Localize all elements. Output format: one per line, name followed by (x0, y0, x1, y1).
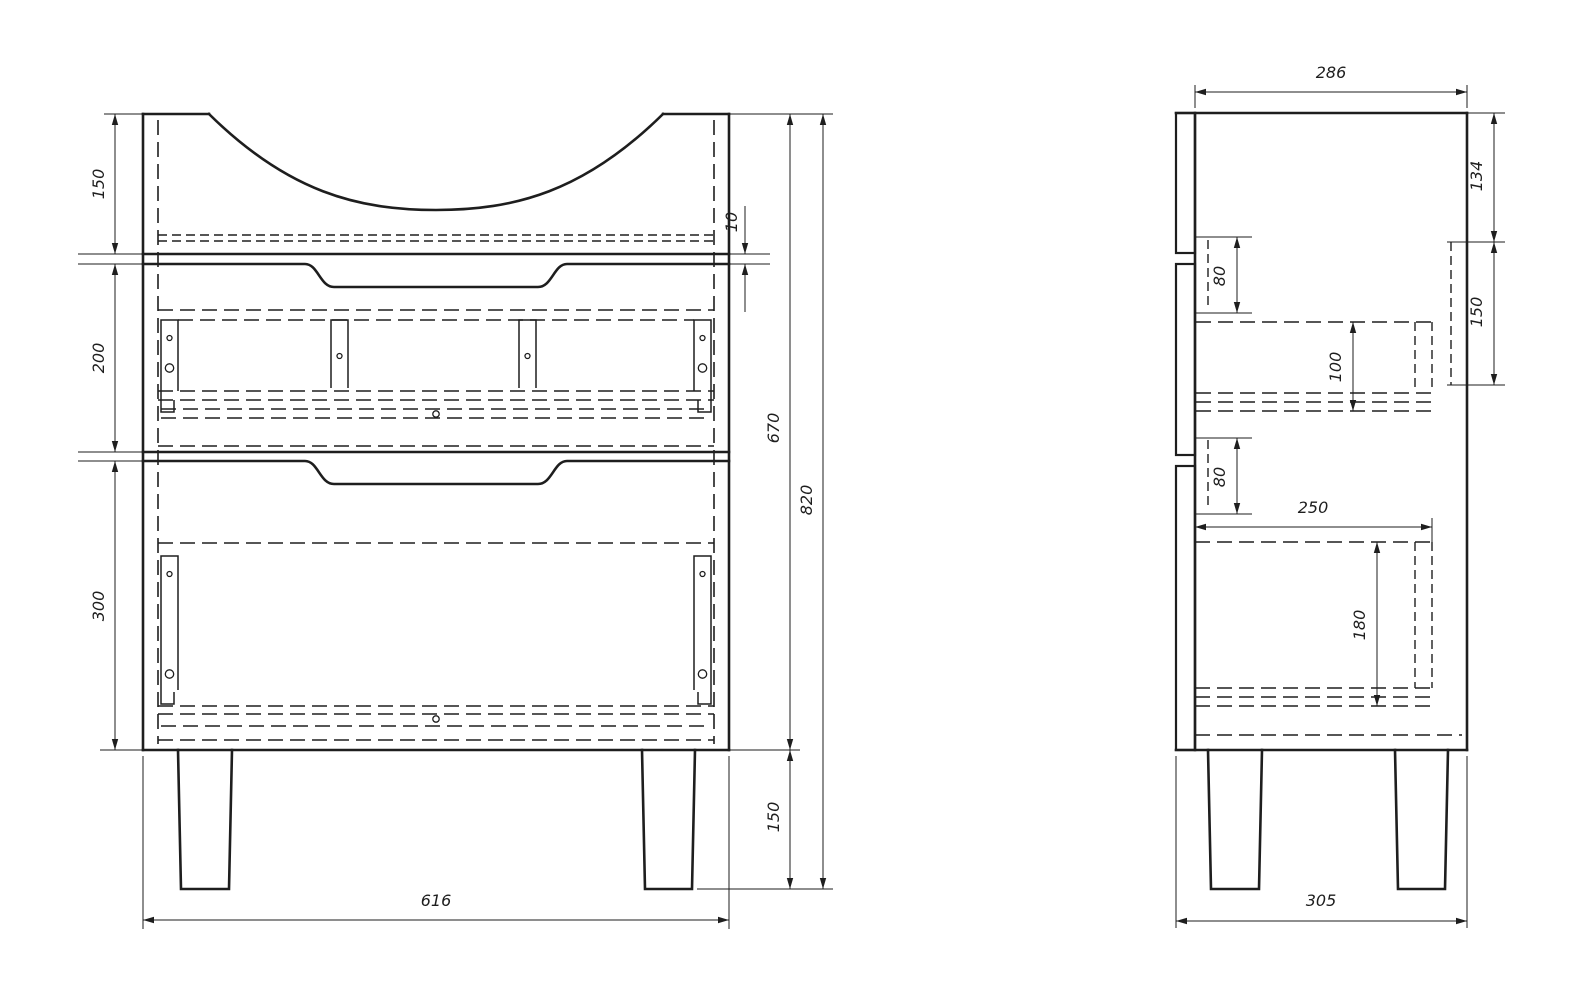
dim-label-side-upper-slide: 80 (1210, 266, 1229, 286)
dim-label-side-back-rail-height: 150 (1467, 297, 1486, 328)
dim-label-side-base-depth: 305 (1306, 891, 1337, 910)
front-drawer2-top-edge-handle-recess (143, 461, 729, 484)
dim-label-front-overall-width: 616 (421, 891, 452, 910)
front-witness-lines (78, 114, 833, 929)
front-cabinet-outline (143, 114, 729, 889)
side-hidden-lines (1195, 240, 1462, 735)
drawer1-center-screw (433, 411, 439, 417)
front-left-leg (178, 750, 232, 889)
drawer2-bracket-left (161, 556, 178, 704)
drawer2-cam-hole (165, 670, 173, 678)
front-sink-cutout-arc (209, 114, 663, 210)
side-front-panel-drawer2 (1176, 466, 1195, 750)
drawer2-screw-hole (167, 572, 172, 577)
front-drawer1-top-edge-handle-recess (143, 264, 729, 287)
dim-label-side-top-to-rail: 134 (1467, 161, 1486, 192)
side-front-panel-top (1176, 113, 1195, 253)
side-view: 286 134 150 80 100 80 250 180 305 (1176, 63, 1505, 928)
cabinet-drawing-svg: 150 200 300 10 670 150 820 616 (0, 0, 1584, 1000)
side-back-leg (1395, 750, 1448, 889)
front-hidden-lines (158, 120, 714, 744)
dim-label-side-lower-slide: 80 (1210, 467, 1229, 487)
drawer1-screw-hole (700, 336, 705, 341)
dim-label-front-bottom-section: 300 (89, 591, 108, 622)
dim-label-front-leg-height: 150 (764, 802, 783, 833)
dim-label-side-depth: 286 (1316, 63, 1347, 82)
dim-label-front-carcass-height: 670 (764, 413, 783, 444)
dim-label-front-overall-height: 820 (797, 485, 816, 516)
dim-label-side-upper-box-height: 100 (1326, 352, 1345, 383)
dim-label-side-lower-box-height: 180 (1350, 610, 1369, 641)
dim-label-front-middle-section: 200 (89, 343, 108, 374)
front-view: 150 200 300 10 670 150 820 616 (78, 114, 833, 929)
front-drawer-brackets (161, 320, 711, 722)
drawer1-cam-hole (165, 364, 173, 372)
dim-label-front-top-section: 150 (89, 169, 108, 200)
side-witness-lines (1176, 85, 1505, 928)
dim-label-front-gap: 10 (722, 212, 741, 232)
drawer2-cam-hole (698, 670, 706, 678)
drawer2-center-screw (433, 716, 439, 722)
drawer1-screw-hole-mid (525, 354, 530, 359)
dim-label-side-lower-box-depth: 250 (1298, 498, 1329, 517)
drawer2-screw-hole (700, 572, 705, 577)
drawer1-cam-hole (698, 364, 706, 372)
side-front-panel-drawer1 (1176, 264, 1195, 455)
front-right-leg (642, 750, 695, 889)
drawer1-screw-hole (167, 336, 172, 341)
technical-drawing-canvas: 150 200 300 10 670 150 820 616 (0, 0, 1584, 1000)
drawer1-screw-hole-mid (337, 354, 342, 359)
side-front-leg (1208, 750, 1262, 889)
drawer2-bracket-right (694, 556, 711, 704)
